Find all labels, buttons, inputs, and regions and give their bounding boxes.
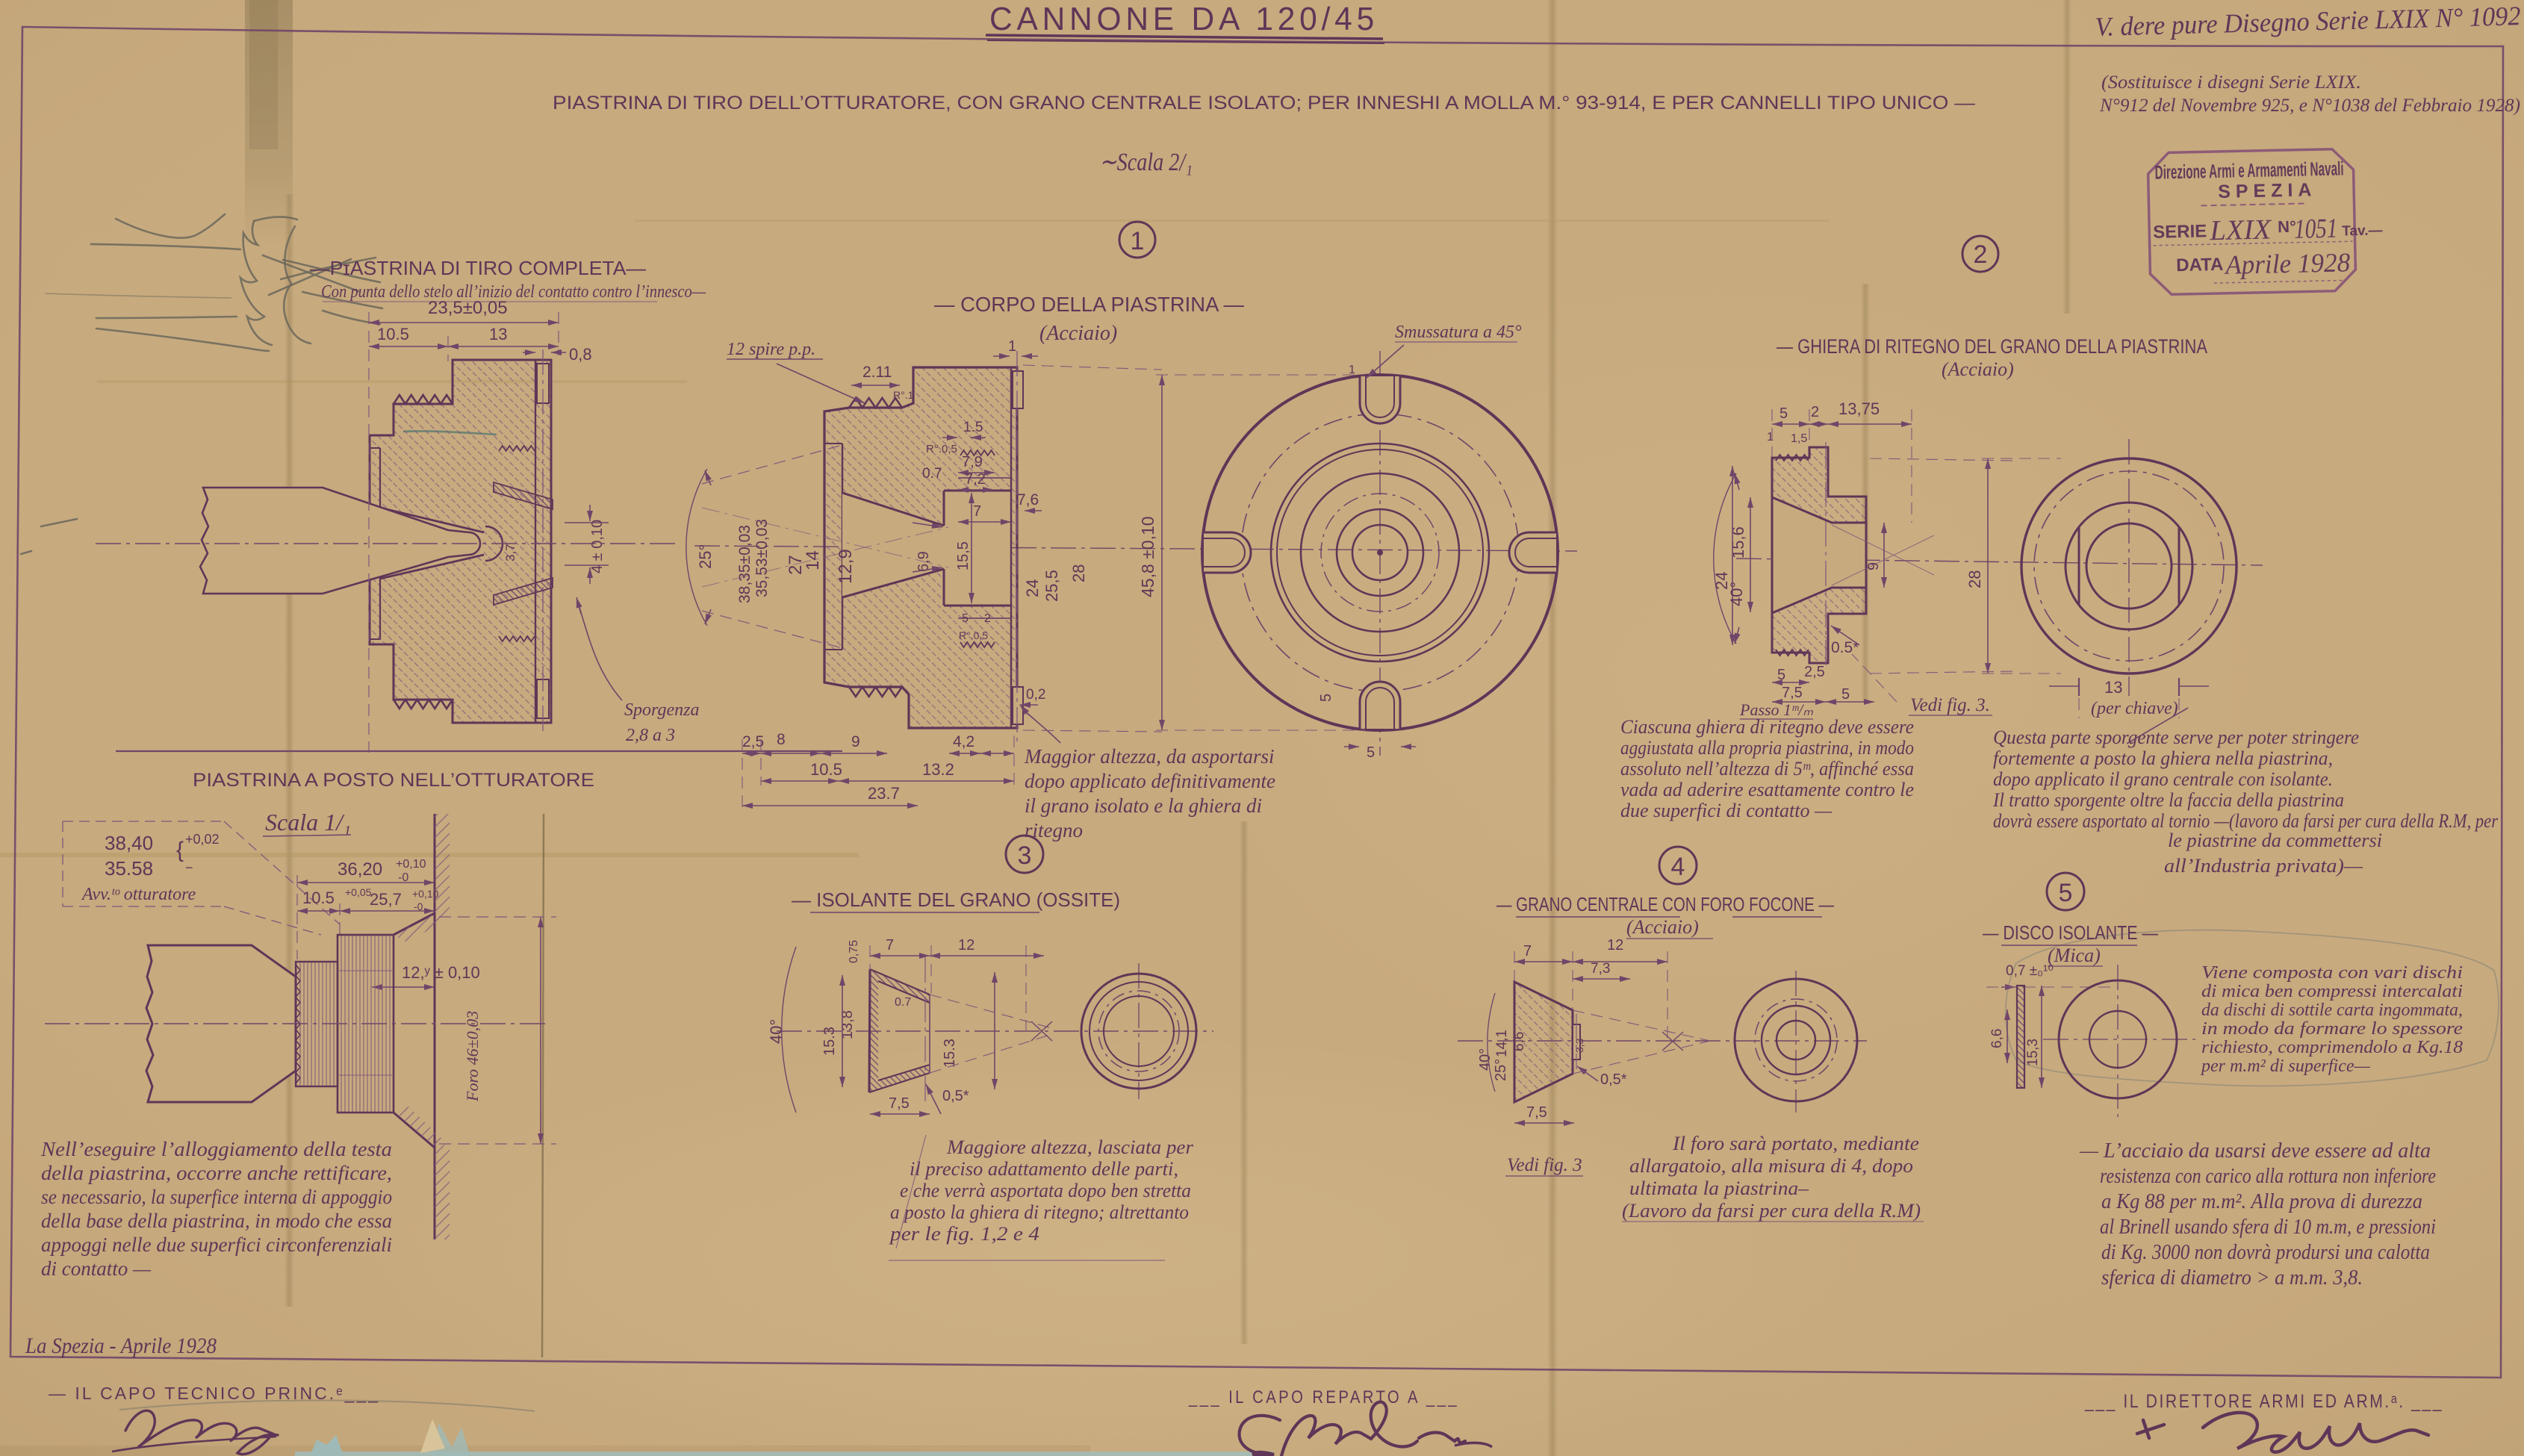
svg-text:2: 2	[1974, 240, 1988, 269]
svg-text:14,1: 14,1	[1494, 1030, 1510, 1057]
svg-text:___ IL CAPO REPARTO A ___: ___ IL CAPO REPARTO A ___	[1188, 1387, 1459, 1407]
svg-text:Sporgenza: Sporgenza	[624, 700, 699, 720]
svg-text:2,5: 2,5	[1804, 664, 1825, 680]
svg-text:5: 5	[962, 612, 969, 625]
svg-text:0.7: 0.7	[922, 466, 942, 482]
svg-text:15.3: 15.3	[821, 1027, 838, 1056]
svg-text:1: 1	[1349, 364, 1355, 376]
svg-text:40°: 40°	[1727, 582, 1746, 606]
svg-text:(per chiave): (per chiave)	[2091, 699, 2178, 718]
svg-text:1: 1	[1131, 227, 1145, 255]
svg-text:sferica di diametro > a m.m. 3: sferica di diametro > a m.m. 3,8.	[2101, 1266, 2363, 1289]
svg-text:(Sostituisce i disegni Serie L: (Sostituisce i disegni Serie LXIX.	[2101, 72, 2361, 93]
svg-text:10.5: 10.5	[302, 889, 335, 907]
svg-text:40°: 40°	[767, 1019, 786, 1044]
svg-text:SERIE: SERIE	[2153, 221, 2207, 243]
svg-text:ultimata la piastrina–: ultimata la piastrina–	[1629, 1177, 1809, 1199]
svg-text:7: 7	[973, 503, 981, 520]
svg-text:da dischi di sottile carta ing: da dischi di sottile carta ingommata,	[2201, 1001, 2463, 1020]
svg-text:25°: 25°	[1493, 1059, 1509, 1081]
svg-text:e che verrà asportata dopo ben: e che verrà asportata dopo ben stretta	[900, 1180, 1191, 1201]
svg-text:dovrà essere asportato al torn: dovrà essere asportato al tornio —(lavor…	[1993, 810, 2499, 832]
svg-text:La Spezia - Aprile 1928: La Spezia - Aprile 1928	[25, 1334, 217, 1358]
svg-text:7,2: 7,2	[965, 471, 986, 488]
svg-text:0,8: 0,8	[569, 345, 592, 364]
svg-text:dopo applicato definitivamente: dopo applicato definitivamente	[1025, 770, 1275, 792]
svg-text:2: 2	[1811, 404, 1819, 420]
svg-text:7,3: 7,3	[1591, 961, 1610, 977]
svg-text:3,7: 3,7	[503, 544, 517, 561]
svg-text:per m.m² di superfice—: per m.m² di superfice—	[2200, 1057, 2370, 1076]
svg-text:R°.0,5: R°.0,5	[959, 629, 988, 641]
svg-text:Il foro sarà portato, mediante: Il foro sarà portato, mediante	[1672, 1133, 1919, 1154]
svg-text:il preciso adattamento delle p: il preciso adattamento delle parti,	[910, 1158, 1178, 1180]
svg-text:25°: 25°	[696, 544, 715, 569]
svg-text:di mica ben compressi intercal: di mica ben compressi intercalati	[2201, 982, 2463, 1001]
svg-text:2,8 a 3: 2,8 a 3	[626, 726, 675, 745]
svg-text:28: 28	[1965, 570, 1984, 588]
svg-text:LXIX: LXIX	[2209, 214, 2273, 246]
svg-text:a posto la ghiera di ritegno;: a posto la ghiera di ritegno; altrettant…	[890, 1201, 1189, 1223]
svg-text:40°: 40°	[1477, 1048, 1493, 1071]
svg-text:10.5: 10.5	[377, 325, 409, 343]
svg-text:5: 5	[1318, 694, 1334, 702]
svg-text:in modo da formare lo spessore: in modo da formare lo spessore	[2201, 1019, 2463, 1039]
svg-text:12: 12	[958, 937, 975, 953]
svg-text:PIASTRINA DI TIRO DELL’OTTURAT: PIASTRINA DI TIRO DELL’OTTURATORE, CON G…	[553, 93, 1975, 113]
svg-text:7: 7	[886, 937, 894, 953]
svg-text:7: 7	[1523, 943, 1532, 959]
svg-text:— GHIERA DI RITEGNO DEL GRANO: — GHIERA DI RITEGNO DEL GRANO DELLA PIAS…	[1777, 335, 2207, 358]
svg-text:Scala 1/₁: Scala 1/₁	[265, 809, 351, 836]
svg-text:per le fig. 1,2 e 4: per le fig. 1,2 e 4	[889, 1223, 1039, 1245]
svg-text:4: 4	[1671, 853, 1685, 881]
svg-text:Vedi fig. 3: Vedi fig. 3	[1507, 1155, 1582, 1175]
svg-text:15,6: 15,6	[1729, 526, 1747, 559]
svg-text:6,6: 6,6	[1511, 1032, 1527, 1051]
svg-text:Foro 46±0,03: Foro 46±0,03	[463, 1011, 482, 1102]
svg-text:23.7: 23.7	[868, 784, 900, 803]
svg-text:45,8 ±0,10: 45,8 ±0,10	[1138, 516, 1157, 597]
svg-text:Maggiore altezza, lasciata per: Maggiore altezza, lasciata per	[946, 1136, 1194, 1158]
svg-text:36,20: 36,20	[338, 859, 382, 880]
svg-text:SPEZIA: SPEZIA	[2218, 179, 2317, 202]
svg-text:1051: 1051	[2294, 214, 2338, 245]
svg-text:le piastrine da commettersi: le piastrine da commettersi	[2168, 830, 2382, 851]
svg-text:CANNONE DA 120/45: CANNONE DA 120/45	[989, 1, 1378, 37]
svg-text:di contatto —: di contatto —	[41, 1257, 152, 1280]
svg-text:allargatoio, alla misura di 4,: allargatoio, alla misura di 4, dopo	[1629, 1155, 1913, 1177]
svg-text:Aprile 1928: Aprile 1928	[2224, 247, 2351, 280]
svg-text:resistenza con carico alla rot: resistenza con carico alla rottura non i…	[2100, 1164, 2436, 1188]
svg-text:(Acciaio): (Acciaio)	[1942, 358, 2014, 380]
svg-text:0,75: 0,75	[848, 940, 860, 963]
svg-text:— L’acciaio da usarsi deve ess: — L’acciaio da usarsi deve essere ad alt…	[2079, 1139, 2431, 1163]
svg-text:0,7 ±₀¹⁰: 0,7 ±₀¹⁰	[2006, 963, 2054, 979]
svg-text:15.3: 15.3	[942, 1039, 958, 1068]
svg-text:R°.1: R°.1	[893, 389, 914, 401]
svg-text:0,2: 0,2	[1026, 687, 1045, 703]
svg-text:7,6: 7,6	[1017, 491, 1039, 508]
svg-text:—PɪASTRINA DI TIRO COMPLETA—: —PɪASTRINA DI TIRO COMPLETA—	[310, 257, 646, 279]
svg-text:— ISOLANTE DEL GRANO (OSSITE): — ISOLANTE DEL GRANO (OSSITE)	[792, 889, 1120, 911]
svg-text:5: 5	[2059, 879, 2073, 907]
svg-text:(Lavoro da farsi per cura dell: (Lavoro da farsi per cura della R.M)	[1622, 1200, 1921, 1222]
svg-text:Viene composta con vari dischi: Viene composta con vari dischi	[2201, 963, 2463, 983]
svg-text:25,5: 25,5	[1042, 570, 1061, 602]
svg-text:il grano isolato e la ghiera d: il grano isolato e la ghiera di	[1025, 794, 1262, 817]
svg-text:5: 5	[1367, 744, 1375, 761]
svg-text:35.58: 35.58	[105, 857, 153, 880]
svg-text:13: 13	[489, 325, 507, 343]
svg-text:0.7: 0.7	[895, 996, 911, 1009]
svg-text:8: 8	[777, 731, 786, 748]
svg-text:0,5*: 0,5*	[1600, 1071, 1627, 1088]
svg-text:appoggi nelle due superfici ci: appoggi nelle due superfici circonferenz…	[41, 1233, 392, 1256]
svg-text:assoluto nell’altezza di 5ᵐ, a: assoluto nell’altezza di 5ᵐ, affinché es…	[1620, 758, 1914, 780]
svg-text:Il tratto sporgente oltre la f: Il tratto sporgente oltre la faccia dell…	[1992, 789, 2344, 811]
svg-text:13: 13	[2104, 678, 2122, 697]
svg-text:aggiustata alla propria piastr: aggiustata alla propria piastrina, in mo…	[1620, 737, 1914, 759]
svg-text:Tav.—: Tav.—	[2342, 223, 2383, 239]
svg-text:4,2: 4,2	[953, 733, 975, 750]
svg-text:Nell’eseguire l’alloggiamento: Nell’eseguire l’alloggiamento della test…	[40, 1138, 392, 1160]
svg-text:— GRANO CENTRALE CON FORO FOCO: — GRANO CENTRALE CON FORO FOCONE —	[1496, 893, 1834, 915]
svg-text:25,7: 25,7	[370, 890, 402, 909]
svg-text:12,9: 12,9	[836, 549, 856, 584]
svg-text:+0,02: +0,02	[185, 832, 220, 847]
svg-text:15,5: 15,5	[955, 541, 972, 570]
svg-text:13,75: 13,75	[1838, 399, 1880, 418]
svg-text:___ IL DIRETTORE ARMI ED ARM.ᵃ: ___ IL DIRETTORE ARMI ED ARM.ᵃ. ___	[2084, 1391, 2443, 1412]
svg-text:0,5*: 0,5*	[942, 1088, 969, 1104]
svg-text:di Kg. 3000 non dovrà prodursi: di Kg. 3000 non dovrà prodursi una calot…	[2101, 1240, 2430, 1264]
svg-text:al Brinell usando sfera di 10: al Brinell usando sfera di 10 m.m, e pre…	[2100, 1215, 2436, 1239]
svg-text:— IL CAPO TECNICO PRINC.ᵉ___: — IL CAPO TECNICO PRINC.ᵉ___	[49, 1384, 380, 1403]
svg-text:7,5: 7,5	[1526, 1104, 1547, 1121]
svg-text:23,5±0,05: 23,5±0,05	[428, 298, 508, 318]
svg-text:— CORPO DELLA PIASTRINA —: — CORPO DELLA PIASTRINA —	[934, 293, 1244, 316]
svg-text:all’Industria privata)—: all’Industria privata)—	[2164, 855, 2363, 877]
svg-text:1,5: 1,5	[1791, 432, 1807, 445]
svg-text:Con punta dello stelo all’iniz: Con punta dello stelo all’inizio del con…	[321, 282, 706, 302]
svg-text:+0,10: +0,10	[396, 858, 426, 871]
svg-text:Vedi fig. 3.: Vedi fig. 3.	[1910, 695, 1990, 715]
svg-text:se necessario, la superfice in: se necessario, la superfice interna di a…	[41, 1186, 392, 1208]
svg-text:N°912 del Novembre 925, e N°10: N°912 del Novembre 925, e N°1038 del Feb…	[2099, 96, 2520, 116]
svg-text:38,40: 38,40	[105, 832, 153, 854]
svg-text:fortemente a posto la ghiera n: fortemente a posto la ghiera nella piast…	[1993, 747, 2333, 769]
svg-text:1: 1	[1008, 338, 1016, 355]
svg-text:5: 5	[1779, 405, 1788, 422]
svg-text:9: 9	[1865, 562, 1882, 570]
svg-text:−: −	[185, 860, 193, 875]
svg-text:(Acciaio): (Acciaio)	[1039, 322, 1117, 345]
svg-text:Avv.ᵗᵒ otturatore: Avv.ᵗᵒ otturatore	[81, 885, 196, 904]
svg-text:DATA: DATA	[2176, 255, 2224, 276]
svg-text:+0,05: +0,05	[345, 886, 372, 898]
svg-text:Ciascuna ghiera di ritegno dev: Ciascuna ghiera di ritegno deve essere	[1620, 716, 1914, 738]
svg-text:12,ʸ ± 0,10: 12,ʸ ± 0,10	[402, 963, 480, 982]
svg-text:15,3: 15,3	[2025, 1039, 2041, 1066]
svg-text:1.5: 1.5	[963, 420, 983, 435]
svg-text:3,3: 3,3	[1573, 1038, 1585, 1053]
svg-text:35,53±0,03: 35,53±0,03	[753, 519, 771, 597]
svg-text:28: 28	[1069, 564, 1088, 582]
svg-text:10.5: 10.5	[810, 760, 842, 779]
svg-text:(Mica): (Mica)	[2048, 945, 2101, 966]
svg-text:24: 24	[1023, 579, 1042, 597]
svg-text:3: 3	[1018, 841, 1032, 870]
svg-text:7,5: 7,5	[1782, 685, 1803, 701]
svg-text:Smussatura a 45°: Smussatura a 45°	[1395, 323, 1522, 342]
svg-text:dopo applicato il grano centra: dopo applicato il grano centrale con iso…	[1993, 768, 2333, 790]
svg-text:5: 5	[1841, 686, 1850, 703]
svg-text:13.2: 13.2	[922, 760, 954, 779]
svg-text:2.11: 2.11	[862, 364, 892, 381]
svg-text:2: 2	[984, 612, 991, 625]
svg-text:PIASTRINA A POSTO NELL’OTTURAT: PIASTRINA A POSTO NELL’OTTURATORE	[193, 770, 594, 791]
svg-text:14: 14	[803, 550, 823, 570]
svg-text:9: 9	[851, 733, 860, 750]
svg-text:12 spire p.p.: 12 spire p.p.	[727, 340, 815, 359]
svg-text:{: {	[176, 838, 184, 862]
svg-text:6,6: 6,6	[1989, 1029, 2005, 1048]
svg-text:7,5: 7,5	[889, 1095, 910, 1112]
svg-text:1: 1	[1767, 431, 1774, 444]
svg-text:∼Scala 2/₁: ∼Scala 2/₁	[1099, 149, 1193, 176]
svg-text:(Acciaio): (Acciaio)	[1626, 916, 1699, 938]
svg-text:della piastrina, occorre anche: della piastrina, occorre anche rettifica…	[41, 1162, 392, 1184]
svg-text:Maggior altezza, da asportarsi: Maggior altezza, da asportarsi	[1024, 745, 1275, 768]
svg-text:della base della piastrina, in: della base della piastrina, in modo che …	[41, 1210, 392, 1232]
svg-text:R°.0,5: R°.0,5	[926, 443, 957, 455]
svg-text:due superfici di contatto —: due superfici di contatto —	[1620, 800, 1833, 821]
svg-text:12: 12	[1607, 937, 1623, 953]
svg-text:vada ad aderire esattamente co: vada ad aderire esattamente contro le	[1620, 779, 1914, 800]
svg-text:— DISCO ISOLANTE —: — DISCO ISOLANTE —	[1983, 921, 2158, 944]
svg-text:38,35±0,03: 38,35±0,03	[736, 525, 753, 603]
svg-text:7,9: 7,9	[962, 454, 983, 470]
svg-text:a Kg 88 per m.m². Alla prova d: a Kg 88 per m.m². Alla prova di durezza	[2101, 1189, 2422, 1213]
svg-text:Questa parte sporgente serve p: Questa parte sporgente serve per poter s…	[1993, 727, 2359, 748]
svg-text:richiesto, comprimendolo a Kg.: richiesto, comprimendolo a Kg.18	[2201, 1038, 2463, 1057]
